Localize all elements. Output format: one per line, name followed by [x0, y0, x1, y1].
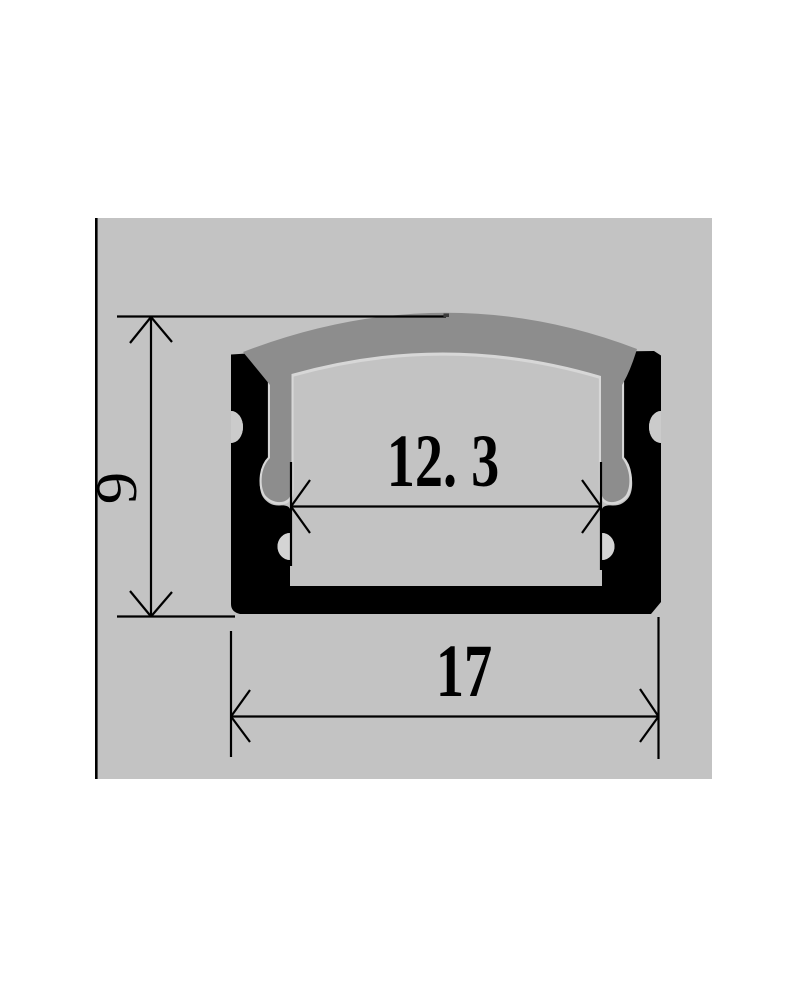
svg-text:9: 9	[85, 472, 149, 504]
svg-text:17: 17	[436, 630, 492, 713]
svg-text:12. 3: 12. 3	[387, 420, 499, 503]
